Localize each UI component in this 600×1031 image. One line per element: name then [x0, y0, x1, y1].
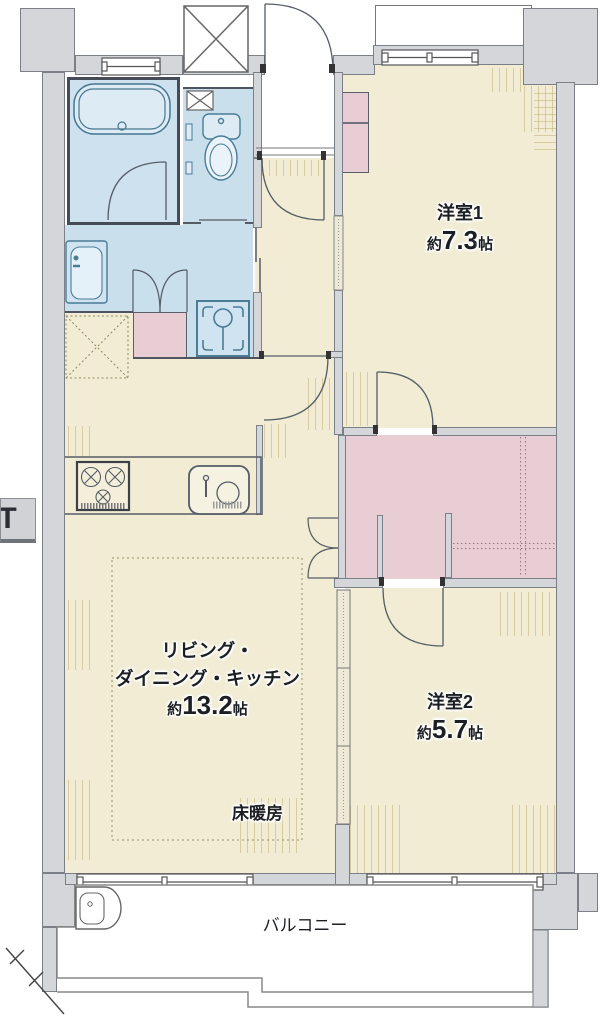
wall-segment: [326, 351, 343, 358]
hatch: [346, 372, 374, 426]
slop-sink-symbol: [76, 887, 121, 929]
room-size-western1: 約7.3帖: [380, 225, 540, 256]
wall-segment: [42, 72, 65, 873]
balcony-label: バルコニー: [225, 911, 385, 936]
wall-segment: [377, 515, 383, 578]
room-size-western2: 約5.7帖: [370, 714, 530, 745]
wall-segment: [433, 427, 557, 436]
wall-segment: [253, 158, 262, 228]
balcony: [57, 885, 548, 1007]
linen-closet: [133, 312, 187, 358]
hatch: [500, 592, 556, 636]
wall-segment: [75, 55, 183, 75]
wall-segment: [20, 8, 75, 72]
hatch: [68, 426, 92, 456]
wall-segment: [334, 578, 383, 588]
wall-segment: [578, 873, 598, 912]
hatch: [264, 424, 286, 458]
toilet-room: [183, 88, 253, 225]
room-label-western2: 洋室2: [380, 688, 520, 714]
hatch: [512, 805, 556, 875]
room-label-ldk-line2: ダイニング・キッチン: [85, 665, 330, 691]
wall-segment: [256, 425, 263, 515]
room-label-ldk-line1: リビング・: [105, 637, 310, 663]
wall-segment: [253, 72, 262, 158]
entry-door: [265, 4, 333, 72]
wall-segment: [334, 72, 343, 216]
wall-segment: [334, 290, 343, 435]
entrance-genkan: [256, 72, 334, 158]
wall-segment: [443, 578, 557, 588]
wall-segment: [253, 292, 262, 358]
alcove-niche: [375, 5, 532, 47]
wall-segment: [338, 435, 346, 579]
wall-segment: [556, 82, 575, 873]
edge-badge: IT: [0, 498, 36, 543]
shoe-cabinet: [342, 92, 369, 173]
hatch: [308, 378, 332, 430]
wall-segment: [65, 873, 557, 885]
hatch: [534, 90, 557, 150]
bathroom: [67, 77, 180, 225]
wall-segment: [343, 427, 377, 436]
hatch: [68, 780, 94, 860]
hatch: [492, 68, 524, 92]
hatch: [262, 160, 320, 176]
wall-segment: [373, 45, 533, 65]
hatch: [350, 805, 405, 875]
room-size-ldk: 約13.2帖: [105, 690, 310, 721]
floor-plan: 洋室1 約7.3帖 リビング・ ダイニング・キッチン 約13.2帖 洋室2 約5…: [0, 0, 600, 1031]
wall-segment: [335, 824, 350, 885]
wall-segment: [523, 8, 598, 85]
hatch: [68, 600, 94, 670]
wall-segment: [42, 927, 57, 992]
wall-segment: [445, 513, 452, 578]
room-label-western1: 洋室1: [390, 199, 530, 225]
floor-heating-label: 床暖房: [205, 799, 310, 824]
